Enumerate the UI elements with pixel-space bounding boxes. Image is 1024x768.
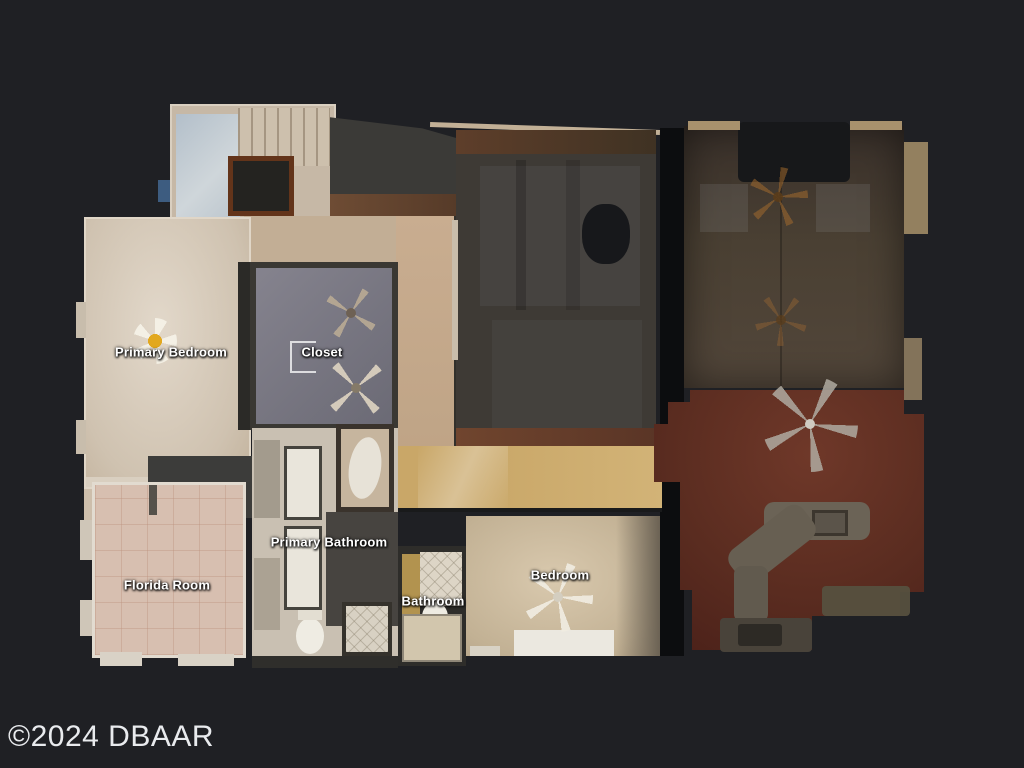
stair-room <box>170 104 336 225</box>
shadow-streak <box>566 160 580 310</box>
ceiling-fan-icon <box>324 286 378 340</box>
room-label-closet: Closet <box>302 345 343 360</box>
roof-trim <box>688 121 740 130</box>
window-light <box>816 184 870 232</box>
light-streak <box>418 446 508 512</box>
wall-trim-bump <box>100 652 142 666</box>
toilet <box>296 618 324 654</box>
wall-trim-bump <box>80 520 92 560</box>
window-light <box>492 320 642 430</box>
room-label-bedroom: Bedroom <box>531 568 589 583</box>
roof-trim <box>850 121 902 130</box>
window-light <box>700 184 748 232</box>
wall-band <box>456 428 656 446</box>
wall-trim-bump <box>904 142 928 234</box>
right-room <box>684 126 904 388</box>
wall-trim-bump <box>470 646 500 656</box>
wall-line <box>398 508 662 512</box>
room-label-primary-bedroom: Primary Bedroom <box>115 345 227 360</box>
ceiling-fan-icon <box>762 376 858 472</box>
vanity <box>254 558 280 630</box>
wall-trim-bump <box>904 338 922 400</box>
florida-room <box>92 482 246 658</box>
garden-tub <box>336 424 394 512</box>
window-light <box>480 166 640 306</box>
ceiling-fan-icon <box>325 357 387 419</box>
wall-trim <box>452 220 458 360</box>
wall-trim-bump <box>80 600 92 636</box>
vanity <box>402 554 420 620</box>
shower <box>342 602 392 656</box>
ceiling-fan-icon <box>755 294 807 346</box>
wall-trim-bump <box>76 420 86 454</box>
room-label-primary-bathroom: Primary Bathroom <box>271 535 388 550</box>
bed-rug <box>514 630 614 656</box>
copyright-watermark: ©2024 DBAAR <box>8 720 214 754</box>
kitchen-counter <box>734 566 768 622</box>
toilet-tank <box>298 610 322 620</box>
kitchen-sink <box>812 510 848 536</box>
wall-stub <box>149 485 157 515</box>
wall-trim-bump <box>178 654 234 666</box>
room-label-bathroom: Bathroom <box>402 594 465 609</box>
stairwell-opening <box>228 156 294 216</box>
garage-wall-band <box>330 194 462 218</box>
wall-trim-bump <box>76 302 86 338</box>
corridor <box>396 216 458 452</box>
dining-hall <box>398 446 662 512</box>
kitchen-counter <box>822 586 910 616</box>
ceiling-fan-icon <box>748 167 808 227</box>
room-label-florida-room: Florida Room <box>124 578 210 593</box>
bathtub <box>402 614 462 662</box>
bath-rug <box>284 446 322 520</box>
porch-strip <box>252 656 398 668</box>
living-room-dark <box>456 130 656 446</box>
blue-fixture <box>158 180 170 202</box>
appliance <box>738 624 782 646</box>
vanity <box>254 440 280 518</box>
floorplan-image: Primary Bedroom Closet Primary Bathroom … <box>0 0 1024 768</box>
wall-band <box>456 130 656 154</box>
tub-basin <box>345 435 385 501</box>
shadow-edge <box>616 516 660 656</box>
shadow-streak <box>516 160 526 310</box>
